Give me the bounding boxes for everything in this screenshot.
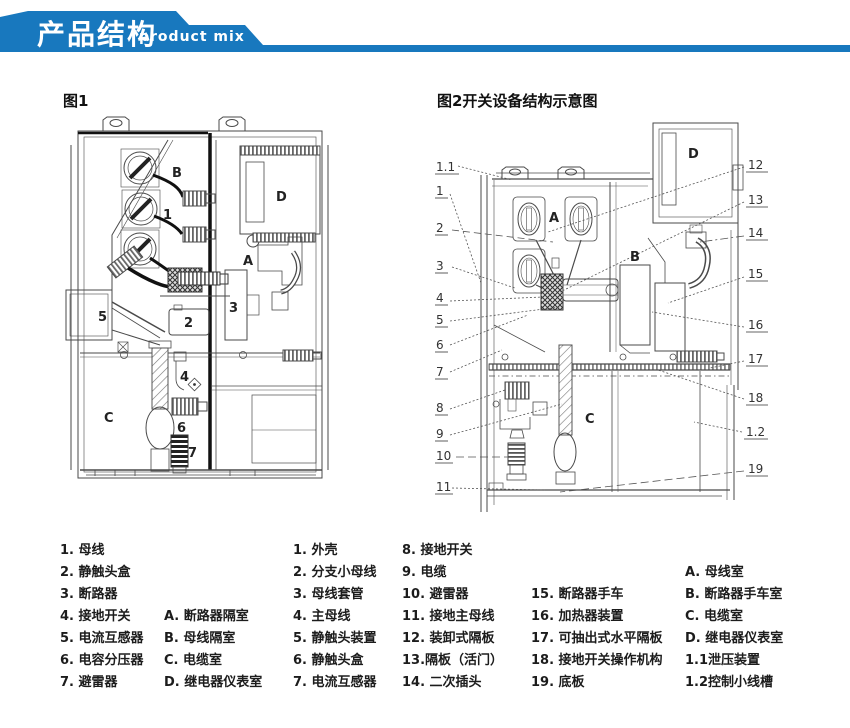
- fig2-shell: [481, 167, 653, 512]
- fig2-label-D: D: [688, 147, 699, 162]
- legend-item: 17. 可抽出式水平隔板: [531, 628, 663, 650]
- fig1-bottom-plate: [80, 395, 322, 476]
- callout-17: 17: [748, 352, 763, 366]
- legend-item: 18. 接地开关操作机构: [531, 650, 663, 672]
- legend-item: 3. 断路器: [60, 584, 144, 606]
- callout-5: 5: [436, 313, 444, 327]
- callout-9: 9: [436, 427, 444, 441]
- legend-item: 4. 接地开关: [60, 606, 144, 628]
- fig2-bottom-plate: [487, 483, 730, 496]
- legend-item: 1. 外壳: [293, 540, 377, 562]
- legend-item: D. 继电器仪表室: [164, 672, 262, 694]
- callout-11: 11: [436, 480, 451, 494]
- legend-item: 11. 接地主母线: [402, 606, 503, 628]
- fig2-breaker-pole: [541, 258, 618, 310]
- legend-item: C. 电缆室: [685, 606, 783, 628]
- fig1-capacitor-box: [66, 290, 165, 352]
- fig1-cable-compartment: [146, 341, 207, 473]
- fig1-label-2: 2: [184, 316, 193, 331]
- legend-item: 5. 静触头装置: [293, 628, 377, 650]
- fig1-mid-rails: [80, 350, 322, 390]
- callout-3: 3: [436, 259, 444, 273]
- fig1-label-B: B: [172, 166, 182, 181]
- legend-item: 1.2控制小线槽: [685, 672, 783, 694]
- fig1-label-A: A: [243, 254, 253, 269]
- fig2-breaker-trolley: [502, 225, 724, 362]
- legend-column-2: 1. 外壳 2. 分支小母线 3. 母线套管 4. 主母线 5. 静触头装置 6…: [293, 540, 377, 694]
- fig1-divider: [210, 133, 216, 470]
- legend-item: 2. 分支小母线: [293, 562, 377, 584]
- fig2-horizontal-partition: [489, 364, 730, 376]
- fig1-label-1: 1: [163, 208, 172, 223]
- fig1-label-5: 5: [98, 310, 107, 325]
- legend-item: C. 电缆室: [164, 650, 262, 672]
- callout-4: 4: [436, 291, 444, 305]
- legend-column-1b: A. 断路器隔室 B. 母线隔室 C. 电缆室 D. 继电器仪表室: [164, 606, 262, 694]
- callout-12: 12: [748, 158, 763, 172]
- callout-6: 6: [436, 338, 444, 352]
- legend-item: 16. 加热器装置: [531, 606, 663, 628]
- legend-column-1: 1. 母线 2. 静触头盒 3. 断路器 4. 接地开关 5. 电流互感器 6.…: [60, 540, 144, 694]
- fig2-label-C: C: [585, 412, 595, 427]
- callout-2: 2: [436, 221, 444, 235]
- fig2-busbar-room: [494, 182, 616, 352]
- callout-8: 8: [436, 401, 444, 415]
- legend-item: A. 断路器隔室: [164, 606, 262, 628]
- legend-item: 6. 电容分压器: [60, 650, 144, 672]
- fig1-label-7: 7: [188, 446, 197, 461]
- page-subtitle: product mix: [139, 29, 245, 45]
- legend-item: 13.隔板（活门）: [402, 650, 503, 672]
- callout-19: 19: [748, 462, 763, 476]
- fig2-label-B: B: [630, 250, 640, 265]
- legend-item: 3. 母线套管: [293, 584, 377, 606]
- callout-1-2: 1.2: [746, 425, 765, 439]
- legend-item: 19. 底板: [531, 672, 663, 694]
- legend-item: 7. 避雷器: [60, 672, 144, 694]
- legend-column-5: A. 母线室 B. 断路器手车室 C. 电缆室 D. 继电器仪表室 1.1泄压装…: [685, 562, 783, 694]
- legend-item: D. 继电器仪表室: [685, 628, 783, 650]
- legend-item: 10. 避雷器: [402, 584, 503, 606]
- fig2-right-callouts: 12 13 14 15 16 17 18 1.2 19: [744, 158, 768, 476]
- legend-item: A. 母线室: [685, 562, 783, 584]
- fig1-label-4: 4: [180, 370, 189, 385]
- fig2-label-A: A: [549, 211, 559, 226]
- legend-item: 12. 装卸式隔板: [402, 628, 503, 650]
- fig2-relay-box: [653, 123, 743, 390]
- callout-18: 18: [748, 391, 763, 405]
- callout-13: 13: [748, 193, 763, 207]
- fig1-lifting-lugs: [103, 117, 245, 131]
- legend-item: 4. 主母线: [293, 606, 377, 628]
- callout-10: 10: [436, 449, 451, 463]
- callout-1: 1: [436, 184, 444, 198]
- legend-item: 14. 二次插头: [402, 672, 503, 694]
- figure2-drawing: 1.1 1 2 3 4 5 6 7 8 9 10 11 12 13 14 15 …: [425, 105, 810, 525]
- legend-item: 1.1泄压装置: [685, 650, 783, 672]
- page: 产品结构 product mix 图1 图2开关设备结构示意图: [0, 0, 850, 728]
- fig1-breaker-pole: [225, 233, 315, 340]
- callout-1-1: 1.1: [436, 160, 455, 174]
- fig1-busbar-compartment: [107, 140, 215, 345]
- legend-column-4: 15. 断路器手车 16. 加热器装置 17. 可抽出式水平隔板 18. 接地开…: [531, 584, 663, 694]
- legend-item: 8. 接地开关: [402, 540, 503, 562]
- fig1-label-D: D: [276, 190, 287, 205]
- legend-item: B. 母线隔室: [164, 628, 262, 650]
- legend-item: B. 断路器手车室: [685, 584, 783, 606]
- callout-15: 15: [748, 267, 763, 281]
- legend-item: 15. 断路器手车: [531, 584, 663, 606]
- legend-item: 1. 母线: [60, 540, 144, 562]
- legend-item: 5. 电流互感器: [60, 628, 144, 650]
- legend-item: 9. 电缆: [402, 562, 503, 584]
- callout-16: 16: [748, 318, 763, 332]
- legend-item: 2. 静触头盒: [60, 562, 144, 584]
- callout-14: 14: [748, 226, 763, 240]
- legend-column-3: 8. 接地开关 9. 电缆 10. 避雷器 11. 接地主母线 12. 装卸式隔…: [402, 540, 503, 694]
- fig1-label-6: 6: [177, 421, 186, 436]
- legend-item: 6. 静触头盒: [293, 650, 377, 672]
- figure1-drawing: B 1 D A 5 2 3 4 C 6 7: [50, 108, 340, 488]
- fig1-contact-junction: [160, 268, 230, 296]
- fig1-label-3: 3: [229, 301, 238, 316]
- legend-item: 7. 电流互感器: [293, 672, 377, 694]
- fig1-label-C: C: [104, 411, 114, 426]
- callout-7: 7: [436, 365, 444, 379]
